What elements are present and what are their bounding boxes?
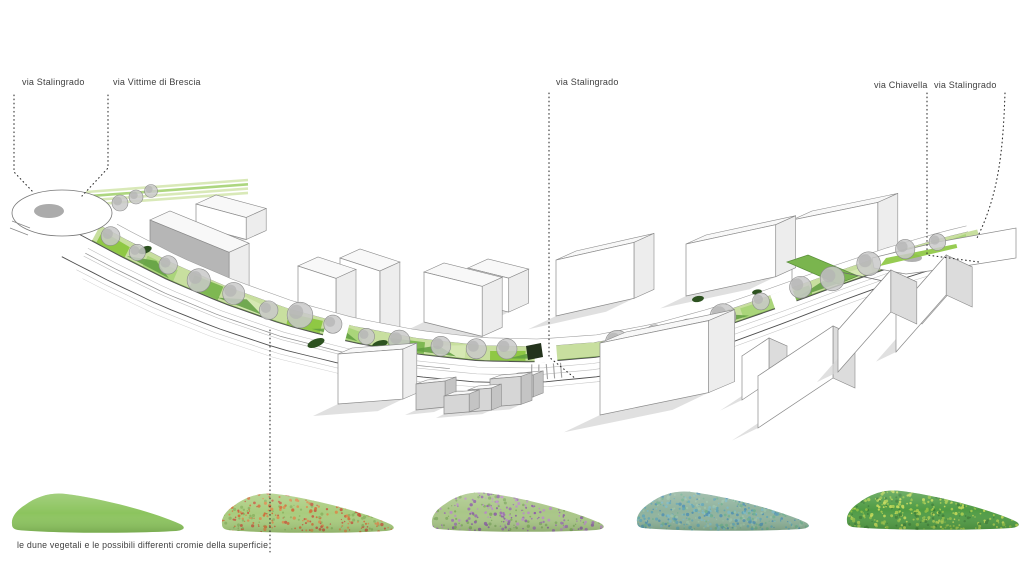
dune-swatch-5 (846, 487, 1020, 530)
street-label-via-stalingrado-right: via Stalingrado (934, 80, 997, 90)
dune-swatch-1 (12, 493, 184, 532)
street-label-via-chiavella: via Chiavella (874, 80, 928, 90)
street-label-via-stalingrado-center: via Stalingrado (556, 77, 619, 87)
street-label-via-stalingrado-left: via Stalingrado (22, 77, 85, 87)
street-label-via-vittime-di-brescia: via Vittime di Brescia (113, 77, 201, 87)
dune-swatch-2 (222, 490, 396, 533)
dune-swatches (12, 487, 1020, 533)
dune-swatch-3 (431, 490, 604, 532)
dune-swatch-4 (636, 489, 811, 532)
dunes-caption: le dune vegetali e le possibili differen… (17, 540, 268, 550)
axonometric-plan-drawing (0, 0, 1024, 586)
masterplan-sheet: via Stalingrado via Vittime di Brescia v… (0, 0, 1024, 586)
